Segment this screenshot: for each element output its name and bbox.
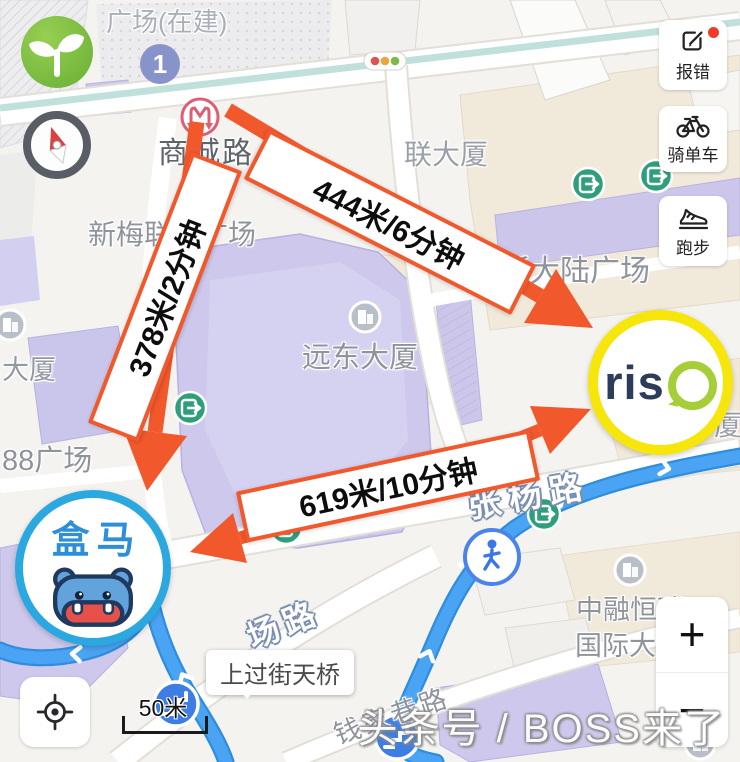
footbridge-tooltip: 上过街天桥 — [206, 650, 354, 695]
label-tower-left: 大厦 — [2, 348, 56, 387]
label-plaza-under-construction: 广场(在建) — [106, 2, 227, 39]
riso-o-bubble-icon — [668, 361, 717, 410]
notification-dot — [708, 27, 719, 38]
label-88-plaza: 88广场 — [2, 437, 92, 479]
label-lian-tower: 联大厦 — [404, 133, 488, 173]
hema-label: 盒马 — [51, 509, 141, 564]
running-shoe-icon — [676, 203, 710, 231]
edit-icon — [679, 27, 707, 55]
riso-label: ris — [604, 355, 665, 410]
footbridge-tooltip-tail — [238, 688, 256, 708]
report-error-button[interactable]: 报错 — [659, 20, 727, 90]
riso-store-marker[interactable]: ris — [588, 310, 733, 455]
cycling-button[interactable]: 骑单车 — [659, 106, 727, 172]
running-label: 跑步 — [676, 234, 710, 259]
locate-me-button[interactable] — [20, 677, 90, 747]
label-zhongrong-line2: 国际大 — [575, 624, 656, 663]
bicycle-icon — [676, 112, 710, 138]
zoom-in-button[interactable]: + — [656, 597, 728, 672]
crosshair-icon — [36, 693, 74, 731]
hema-store-marker[interactable]: 盒马 — [15, 490, 171, 646]
map-scale-bar — [122, 716, 208, 734]
report-error-label: 报错 — [676, 58, 710, 83]
watermark: 头条号 / BOSS来了 — [358, 696, 727, 754]
label-yuandong-tower: 远东大厦 — [302, 334, 418, 376]
map-app: 1 广场(在建) 商城路 新梅联合广场 远东大厦 88广场 — [0, 0, 740, 762]
running-button[interactable]: 跑步 — [659, 196, 727, 266]
label-road-fragment: 场路 — [239, 587, 327, 658]
cycling-label: 骑单车 — [668, 141, 719, 166]
hema-hippo-icon — [50, 566, 136, 630]
